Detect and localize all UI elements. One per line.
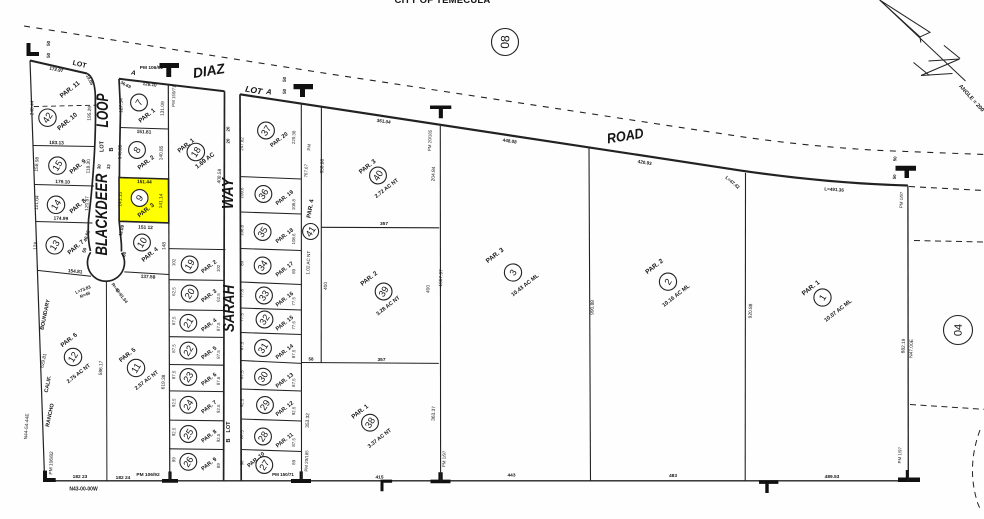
svg-text:PM 150/71: PM 150/71: [272, 472, 294, 477]
svg-text:619.38: 619.38: [161, 374, 168, 389]
svg-text:87.5: 87.5: [239, 430, 244, 439]
svg-text:108.6: 108.6: [291, 233, 296, 245]
svg-text:182 23: 182 23: [73, 474, 88, 480]
svg-text:87.5: 87.5: [216, 350, 221, 359]
svg-text:183.13: 183.13: [49, 140, 64, 147]
svg-text:89: 89: [216, 463, 221, 469]
svg-text:118.30: 118.30: [86, 159, 93, 174]
svg-text:990.88: 990.88: [589, 300, 596, 315]
svg-text:108.8: 108.8: [239, 224, 244, 236]
svg-text:87.5: 87.5: [291, 438, 296, 447]
svg-text:50: 50: [282, 76, 287, 82]
svg-text:127.54: 127.54: [118, 98, 125, 113]
svg-text:141.15: 141.15: [117, 191, 124, 206]
svg-text:WAY: WAY: [220, 177, 237, 209]
svg-text:151.81: 151.81: [136, 129, 151, 136]
svg-text:363.37: 363.37: [431, 406, 438, 421]
svg-text:50: 50: [282, 88, 287, 94]
svg-text:N43-00-00W: N43-00-00W: [69, 486, 98, 492]
svg-text:CITY OF TEMECULA: CITY OF TEMECULA: [395, 0, 491, 6]
svg-text:99: 99: [171, 457, 176, 463]
svg-text:89: 89: [239, 260, 244, 266]
svg-text:415: 415: [375, 474, 383, 480]
svg-text:87.5: 87.5: [171, 370, 176, 379]
svg-text:1.02 AC NT: 1.02 AC NT: [305, 251, 311, 275]
svg-text:87.5: 87.5: [171, 344, 176, 353]
svg-text:220.38: 220.38: [291, 130, 296, 144]
svg-text:140.85: 140.85: [117, 144, 124, 159]
svg-text:400: 400: [425, 285, 431, 294]
svg-text:PM 1/97: PM 1/97: [441, 450, 447, 467]
svg-text:137.58: 137.58: [140, 274, 155, 281]
svg-text:BLACKDEER: BLACKDEER: [93, 173, 111, 255]
svg-text:140.85: 140.85: [158, 145, 165, 160]
svg-text:109.6: 109.6: [239, 187, 244, 199]
svg-text:357: 357: [380, 221, 388, 227]
svg-text:B: B: [226, 438, 232, 442]
svg-text:148: 148: [161, 242, 167, 251]
svg-text:77.5: 77.5: [239, 313, 244, 322]
svg-text:586.17: 586.17: [98, 360, 105, 375]
svg-text:92.5: 92.5: [216, 433, 221, 442]
svg-text:483: 483: [669, 473, 677, 479]
svg-text:LOOP: LOOP: [94, 93, 112, 128]
svg-text:58: 58: [308, 356, 314, 361]
svg-text:PM 20/185: PM 20/185: [427, 129, 433, 151]
svg-text:357: 357: [377, 357, 385, 363]
svg-text:98: 98: [239, 460, 244, 466]
svg-text:PM 106/92: PM 106/92: [136, 472, 160, 478]
svg-text:195.29: 195.29: [87, 106, 94, 121]
svg-text:89: 89: [291, 268, 296, 274]
svg-text:62.5: 62.5: [171, 287, 176, 296]
svg-text:108.8: 108.8: [291, 199, 296, 211]
svg-text:PM 106/82: PM 106/82: [48, 451, 55, 475]
svg-text:182 24: 182 24: [116, 475, 131, 481]
svg-text:174.99: 174.99: [53, 216, 68, 223]
svg-text:LOT: LOT: [226, 421, 232, 433]
svg-text:20: 20: [226, 138, 231, 143]
svg-text:50: 50: [46, 52, 51, 58]
svg-text:443: 443: [507, 473, 515, 479]
svg-text:PM 1/97: PM 1/97: [899, 191, 905, 208]
svg-text:92.5: 92.5: [239, 398, 244, 407]
svg-text:353.32: 353.32: [305, 413, 312, 428]
svg-text:20: 20: [226, 126, 231, 131]
svg-text:87.5: 87.5: [291, 349, 296, 358]
svg-text:PM 150/71: PM 150/71: [171, 85, 177, 107]
svg-text:89: 89: [291, 459, 296, 465]
svg-text:87.5: 87.5: [239, 341, 244, 350]
svg-text:141.14: 141.14: [158, 193, 165, 208]
svg-text:151.44: 151.44: [137, 179, 152, 186]
svg-text:LOT: LOT: [100, 140, 106, 152]
svg-text:489.53: 489.53: [825, 474, 840, 480]
svg-text:B: B: [109, 147, 115, 151]
svg-text:151 12: 151 12: [138, 225, 153, 232]
svg-text:92.5: 92.5: [171, 398, 176, 407]
svg-text:400: 400: [323, 282, 329, 291]
svg-text:128: 128: [33, 241, 40, 250]
svg-text:102: 102: [216, 264, 221, 272]
svg-text:77.6: 77.6: [291, 321, 296, 330]
svg-text:204.84: 204.84: [431, 166, 438, 181]
svg-text:87.5: 87.5: [216, 322, 221, 331]
svg-text:87.5: 87.5: [171, 316, 176, 325]
svg-text:SARAH: SARAH: [221, 285, 238, 332]
svg-text:1067.97: 1067.97: [438, 269, 445, 287]
svg-text:PM: PM: [306, 144, 311, 151]
svg-text:87.5: 87.5: [239, 370, 244, 379]
svg-text:121.04: 121.04: [34, 195, 41, 210]
svg-text:882.19: 882.19: [901, 338, 908, 353]
svg-text:50: 50: [46, 40, 51, 46]
svg-text:767.67: 767.67: [303, 163, 308, 177]
svg-text:08: 08: [498, 35, 512, 49]
svg-text:102: 102: [171, 258, 176, 266]
svg-text:247.82: 247.82: [239, 137, 244, 151]
svg-text:87.6: 87.6: [216, 376, 221, 385]
svg-text:131.09: 131.09: [160, 101, 167, 116]
svg-text:PM 20/185: PM 20/185: [304, 450, 310, 472]
svg-text:87.5: 87.5: [291, 378, 296, 387]
svg-text:N47.00E: N47.00E: [908, 339, 915, 358]
svg-text:04: 04: [952, 324, 964, 337]
svg-text:92.5: 92.5: [291, 406, 296, 415]
svg-text:77.8: 77.8: [239, 289, 244, 298]
svg-text:62.5: 62.5: [216, 293, 221, 302]
svg-text:358.86: 358.86: [319, 158, 326, 173]
svg-text:92.5: 92.5: [216, 404, 221, 413]
svg-text:920.88: 920.88: [748, 303, 755, 318]
svg-text:179.10: 179.10: [55, 179, 70, 186]
svg-text:PM 1/97: PM 1/97: [897, 446, 903, 463]
svg-text:158.98: 158.98: [34, 156, 41, 171]
svg-text:92.5: 92.5: [171, 427, 176, 436]
svg-text:246.44: 246.44: [29, 100, 36, 115]
svg-text:77.5: 77.5: [291, 297, 296, 306]
